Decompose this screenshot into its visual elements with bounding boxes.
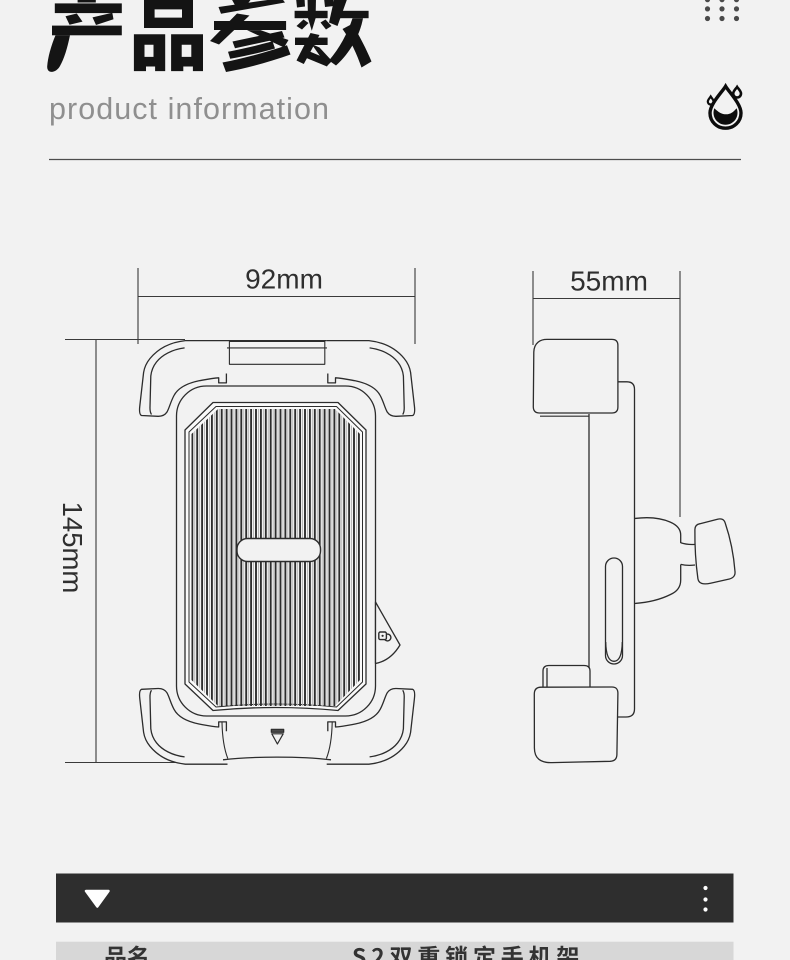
svg-text:product information: product information (49, 92, 330, 126)
svg-text:92mm: 92mm (245, 264, 323, 295)
svg-text:145mm: 145mm (57, 502, 88, 594)
svg-text:55mm: 55mm (570, 266, 648, 297)
